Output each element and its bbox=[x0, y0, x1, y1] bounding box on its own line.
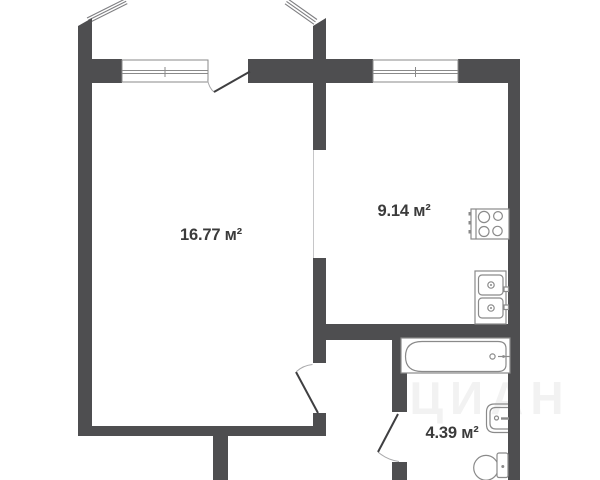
glazing-line bbox=[287, 1, 316, 22]
door-leaf bbox=[296, 372, 318, 413]
toilet-icon bbox=[474, 453, 508, 480]
toilet-bowl bbox=[474, 455, 499, 480]
left-exterior-wall bbox=[78, 18, 92, 435]
burner bbox=[479, 227, 489, 237]
lower-stub-wall bbox=[213, 435, 228, 480]
glazing-line bbox=[89, 4, 127, 23]
glazing-line bbox=[87, 0, 125, 18]
balcony-glazing bbox=[87, 0, 317, 24]
stove-knob bbox=[469, 221, 472, 225]
bathtub-icon bbox=[401, 338, 510, 373]
right-exterior-wall bbox=[508, 83, 520, 480]
burner bbox=[478, 211, 489, 222]
balcony-door bbox=[208, 72, 251, 93]
glazing-line bbox=[88, 1, 126, 20]
floor-plan: ЦИАН 2 bbox=[0, 0, 600, 480]
bathroom-area-label: 4.39 м² bbox=[426, 424, 480, 442]
stove-body bbox=[471, 209, 509, 239]
top-wall-middle bbox=[248, 59, 373, 83]
sink-tap bbox=[504, 287, 509, 292]
window-living bbox=[122, 60, 208, 82]
bathroom-door bbox=[378, 414, 399, 462]
floor-plan-drawing: ЦИАН 2 bbox=[0, 0, 600, 480]
stove-knob bbox=[469, 230, 472, 234]
sink-drain-dot bbox=[490, 307, 492, 309]
kitchen-area-label: 9.14 м² bbox=[378, 202, 432, 220]
living-room-door bbox=[296, 365, 318, 414]
stove-knob bbox=[469, 212, 472, 216]
toilet-button bbox=[501, 465, 504, 468]
bathroom-left-wall-stub bbox=[392, 462, 407, 480]
burner bbox=[493, 226, 502, 235]
balcony-divider-wall bbox=[313, 18, 326, 150]
top-wall-right bbox=[458, 59, 520, 83]
top-wall-left bbox=[92, 59, 122, 83]
door-leaf bbox=[214, 72, 250, 93]
bathtub-faucet-dot bbox=[502, 355, 505, 358]
door-swing-arc bbox=[378, 452, 399, 462]
room-divider-wall bbox=[313, 258, 326, 363]
door-swing-arc bbox=[297, 365, 313, 372]
sink-drain-dot bbox=[490, 284, 492, 286]
bathtub-drain bbox=[490, 354, 495, 359]
burner bbox=[494, 212, 503, 221]
window-kitchen bbox=[373, 60, 458, 82]
washbasin-drain bbox=[495, 416, 499, 420]
door-leaf bbox=[378, 414, 398, 452]
stove-icon bbox=[469, 209, 510, 239]
sink-tap bbox=[504, 305, 509, 310]
kitchen-sink-icon bbox=[475, 271, 509, 324]
living-bottom-wall bbox=[78, 426, 326, 436]
living-room-area-label: 16.77 м² bbox=[180, 226, 243, 244]
